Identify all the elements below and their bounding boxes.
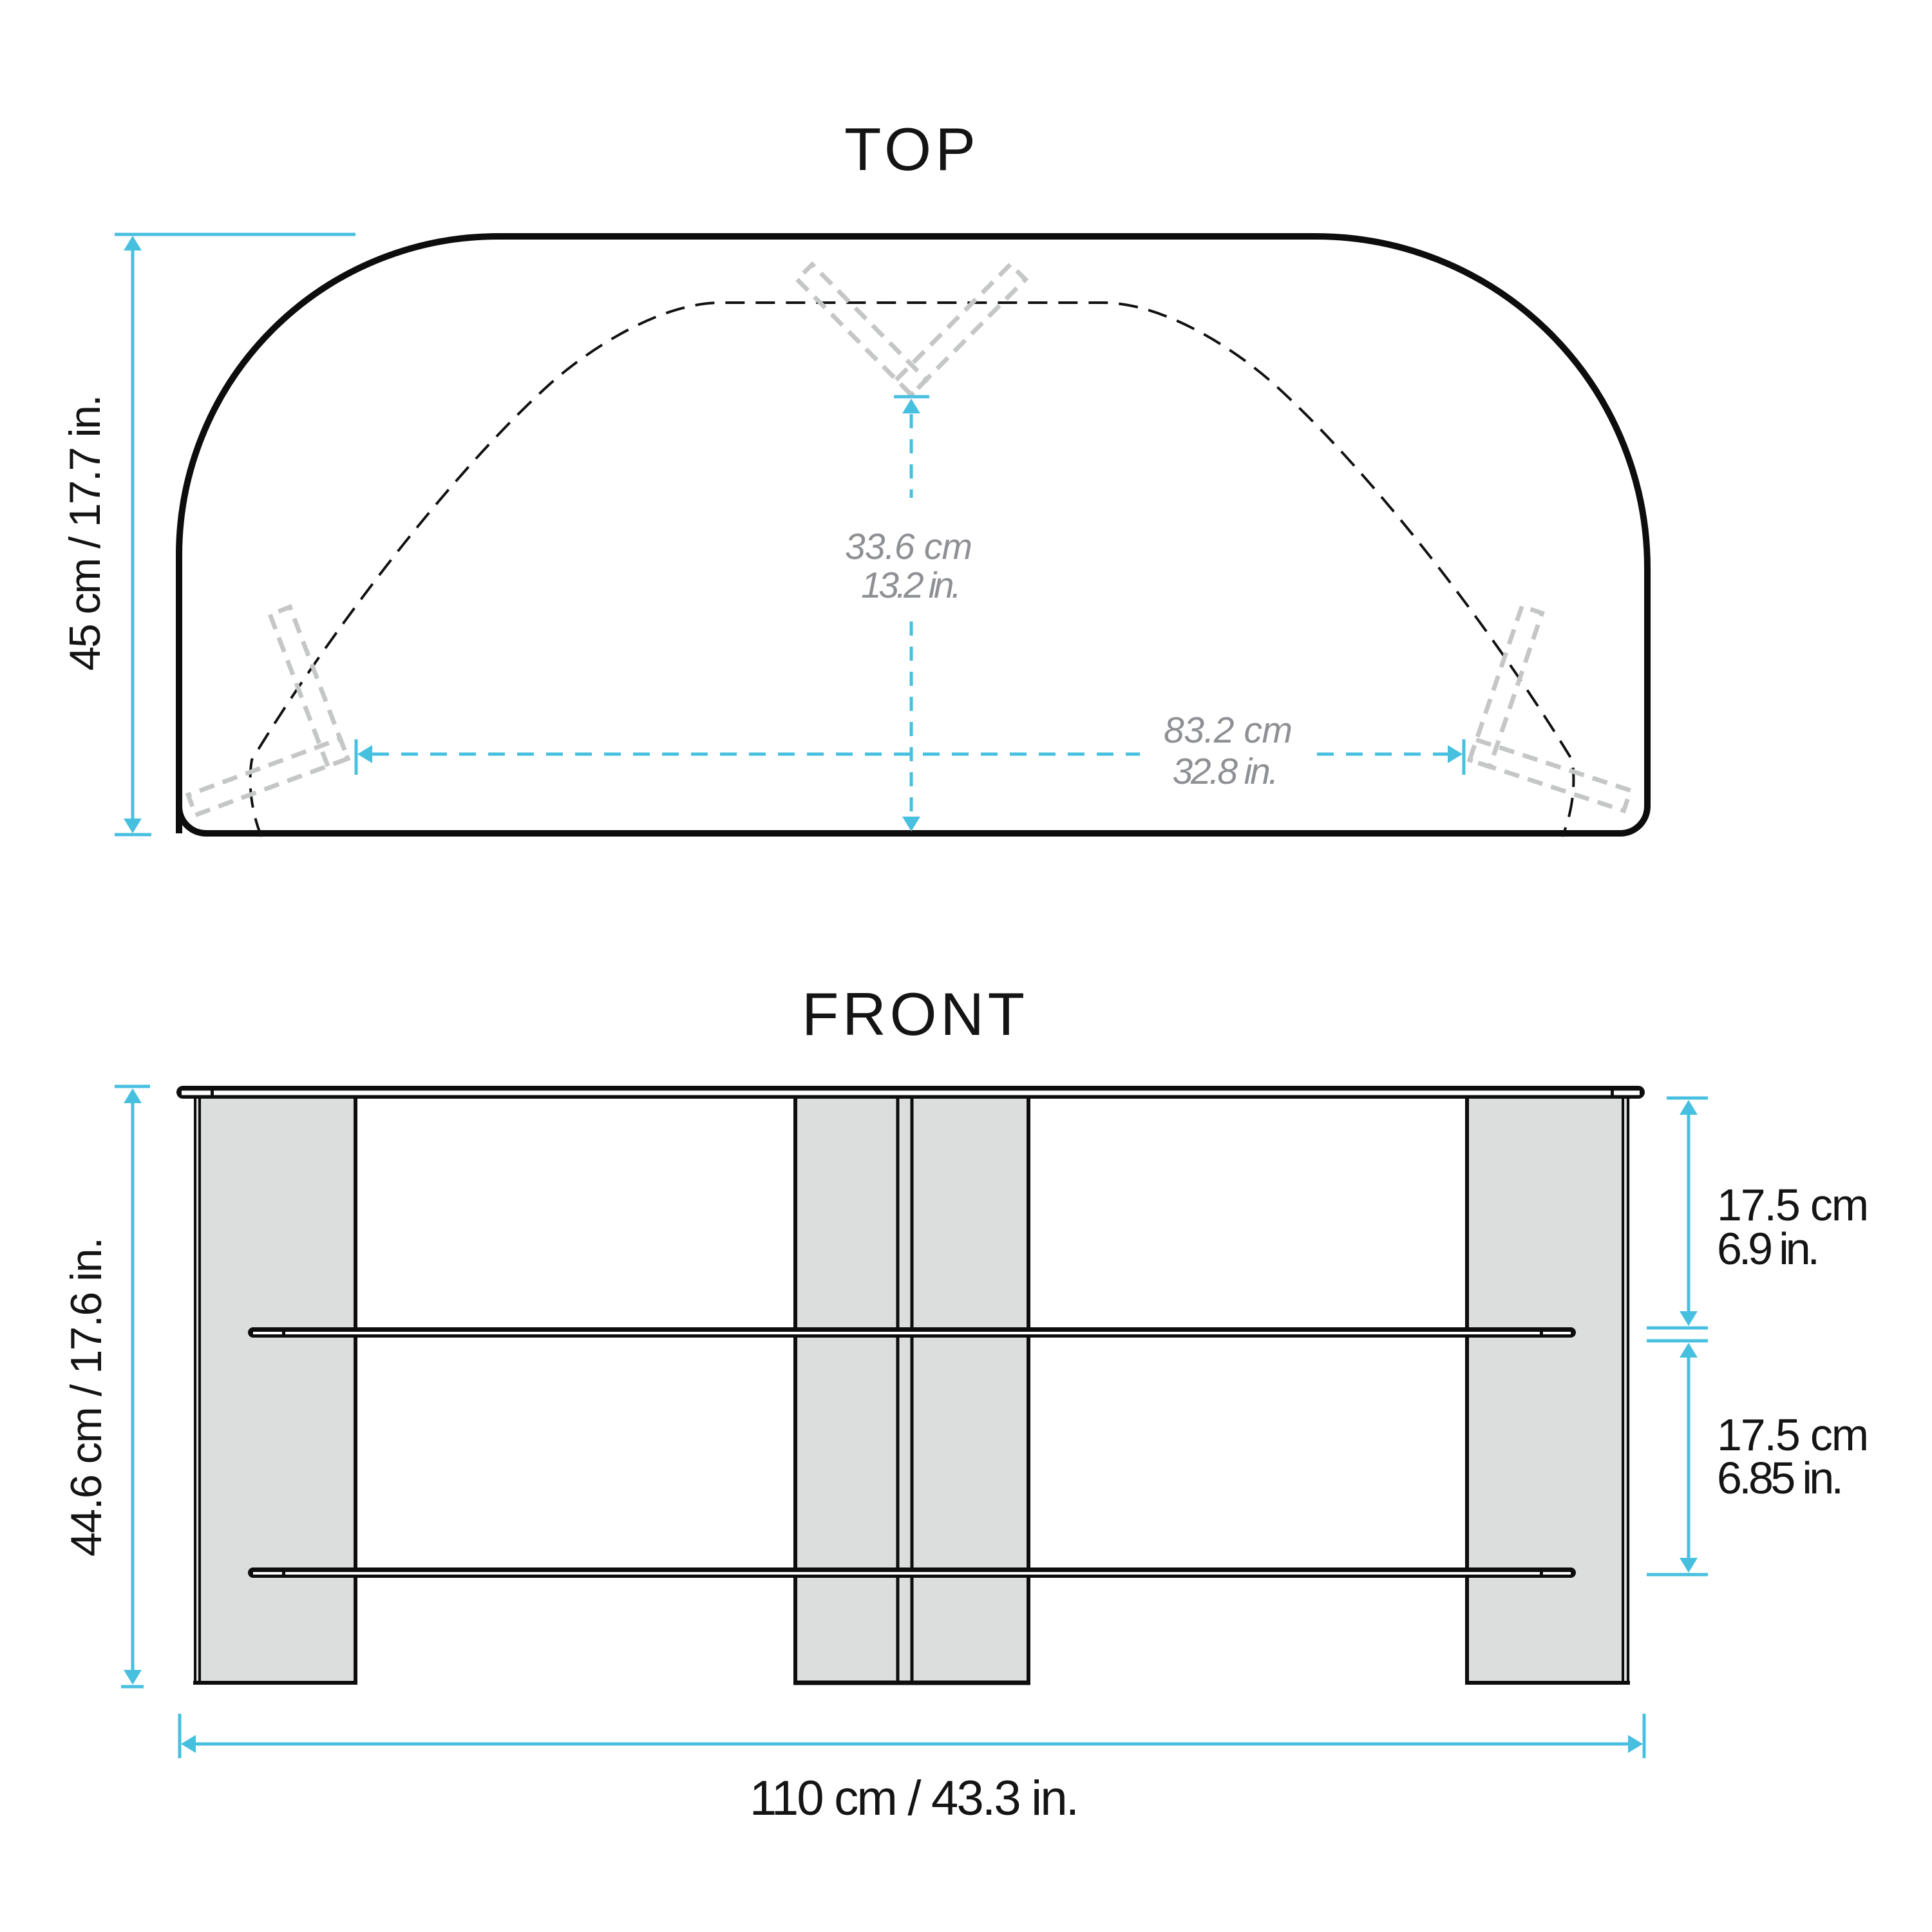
svg-text:44.6 cm / 17.6 in.: 44.6 cm / 17.6 in. bbox=[62, 1237, 111, 1557]
svg-text:FRONT: FRONT bbox=[802, 980, 1026, 1048]
svg-text:6.9 in.: 6.9 in. bbox=[1717, 1224, 1820, 1274]
svg-text:TOP: TOP bbox=[844, 115, 977, 183]
svg-text:110 cm / 43.3 in.: 110 cm / 43.3 in. bbox=[750, 1771, 1079, 1826]
svg-text:33.6 cm: 33.6 cm bbox=[845, 526, 972, 567]
svg-text:83.2 cm: 83.2 cm bbox=[1164, 710, 1293, 751]
svg-text:45 cm / 17.7 in.: 45 cm / 17.7 in. bbox=[61, 395, 109, 671]
svg-text:13.2 in.: 13.2 in. bbox=[861, 565, 961, 606]
svg-text:32.8 in.: 32.8 in. bbox=[1173, 751, 1279, 792]
svg-text:6.85 in.: 6.85 in. bbox=[1717, 1453, 1844, 1503]
svg-text:17.5 cm: 17.5 cm bbox=[1717, 1180, 1869, 1230]
